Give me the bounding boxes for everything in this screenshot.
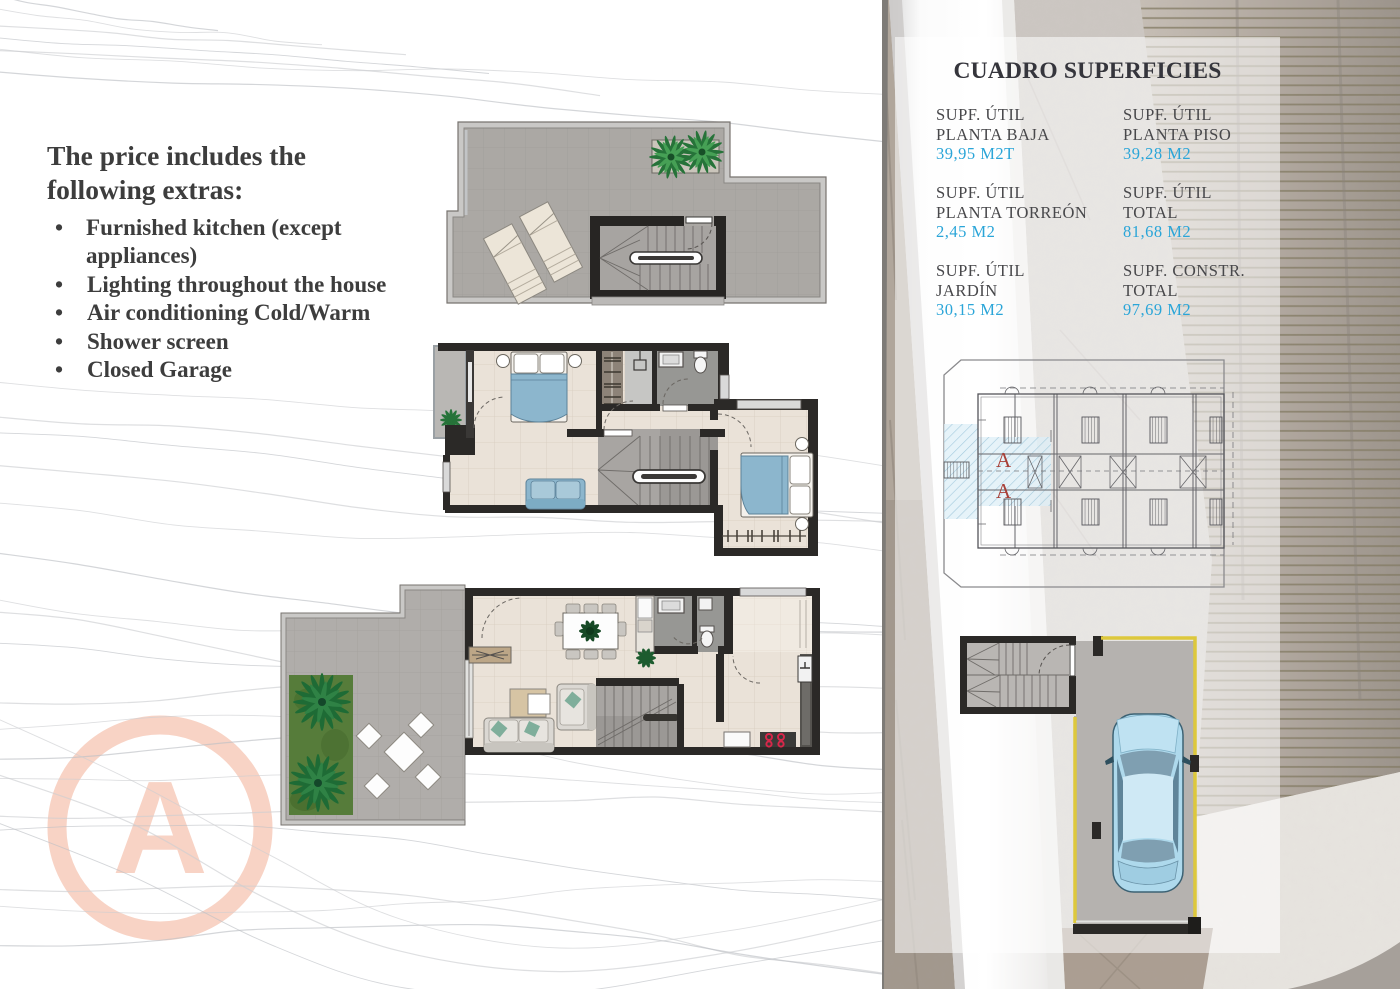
- svg-text:A: A: [996, 448, 1012, 472]
- svg-text:A: A: [996, 479, 1012, 503]
